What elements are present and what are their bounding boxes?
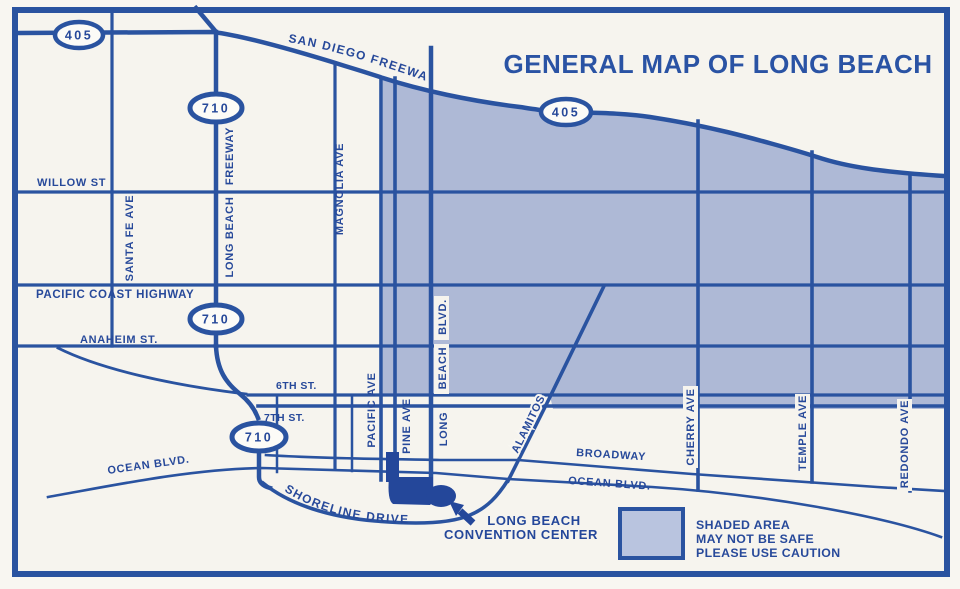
shield-710-south: 710 <box>232 423 286 451</box>
label-willow-st: WILLOW ST <box>37 177 106 189</box>
convention-center-annex <box>386 452 399 482</box>
shield-710-north-label: 710 <box>202 102 230 116</box>
shield-710-north: 710 <box>190 94 242 122</box>
legend-swatch <box>620 509 683 558</box>
label-temple-ave: TEMPLE AVE <box>797 395 809 471</box>
label-7th-st: 7TH ST. <box>264 412 305 424</box>
label-long-beach-blvd-beach: BEACH <box>437 347 449 390</box>
map-canvas: 405 405 710 710 710 SAN DIEGO FREEWAY WI… <box>0 0 960 589</box>
legend-line3: PLEASE USE CAUTION <box>696 546 841 560</box>
shield-405-northwest-label: 405 <box>65 29 93 43</box>
label-anaheim-st: ANAHEIM ST. <box>80 334 158 346</box>
long-beach-map-page: 405 405 710 710 710 SAN DIEGO FREEWAY WI… <box>0 0 960 589</box>
label-long-beach-freeway-suffix: FREEWAY <box>224 127 236 185</box>
shield-405-central: 405 <box>541 99 591 125</box>
label-magnolia-ave: MAGNOLIA AVE <box>334 143 346 235</box>
legend-line2: MAY NOT BE SAFE <box>696 532 814 546</box>
shield-710-south-label: 710 <box>245 431 273 445</box>
shield-405-central-label: 405 <box>552 106 580 120</box>
label-redondo-ave: REDONDO AVE <box>899 400 911 488</box>
label-long-beach-blvd-blvd: BLVD. <box>437 299 449 335</box>
label-santa-fe-ave: SANTA FE AVE <box>124 195 136 282</box>
shield-405-northwest: 405 <box>55 22 103 48</box>
label-pacific-coast-highway: PACIFIC COAST HIGHWAY <box>36 289 194 301</box>
label-pine-ave: PINE AVE <box>401 398 413 454</box>
page-title: GENERAL MAP OF LONG BEACH <box>503 49 932 79</box>
shield-710-mid: 710 <box>190 305 242 333</box>
label-long-beach-blvd-long: LONG <box>438 412 450 447</box>
convention-center-line1: LONG BEACH <box>487 513 580 528</box>
label-cherry-ave: CHERRY AVE <box>685 388 697 465</box>
shield-710-mid-label: 710 <box>202 313 230 327</box>
convention-center-line2: CONVENTION CENTER <box>444 527 598 542</box>
label-6th-st: 6TH ST. <box>276 380 317 392</box>
legend-line1: SHADED AREA <box>696 518 790 532</box>
label-long-beach-freeway: LONG BEACH <box>224 197 236 278</box>
label-pacific-ave: PACIFIC AVE <box>366 372 378 447</box>
